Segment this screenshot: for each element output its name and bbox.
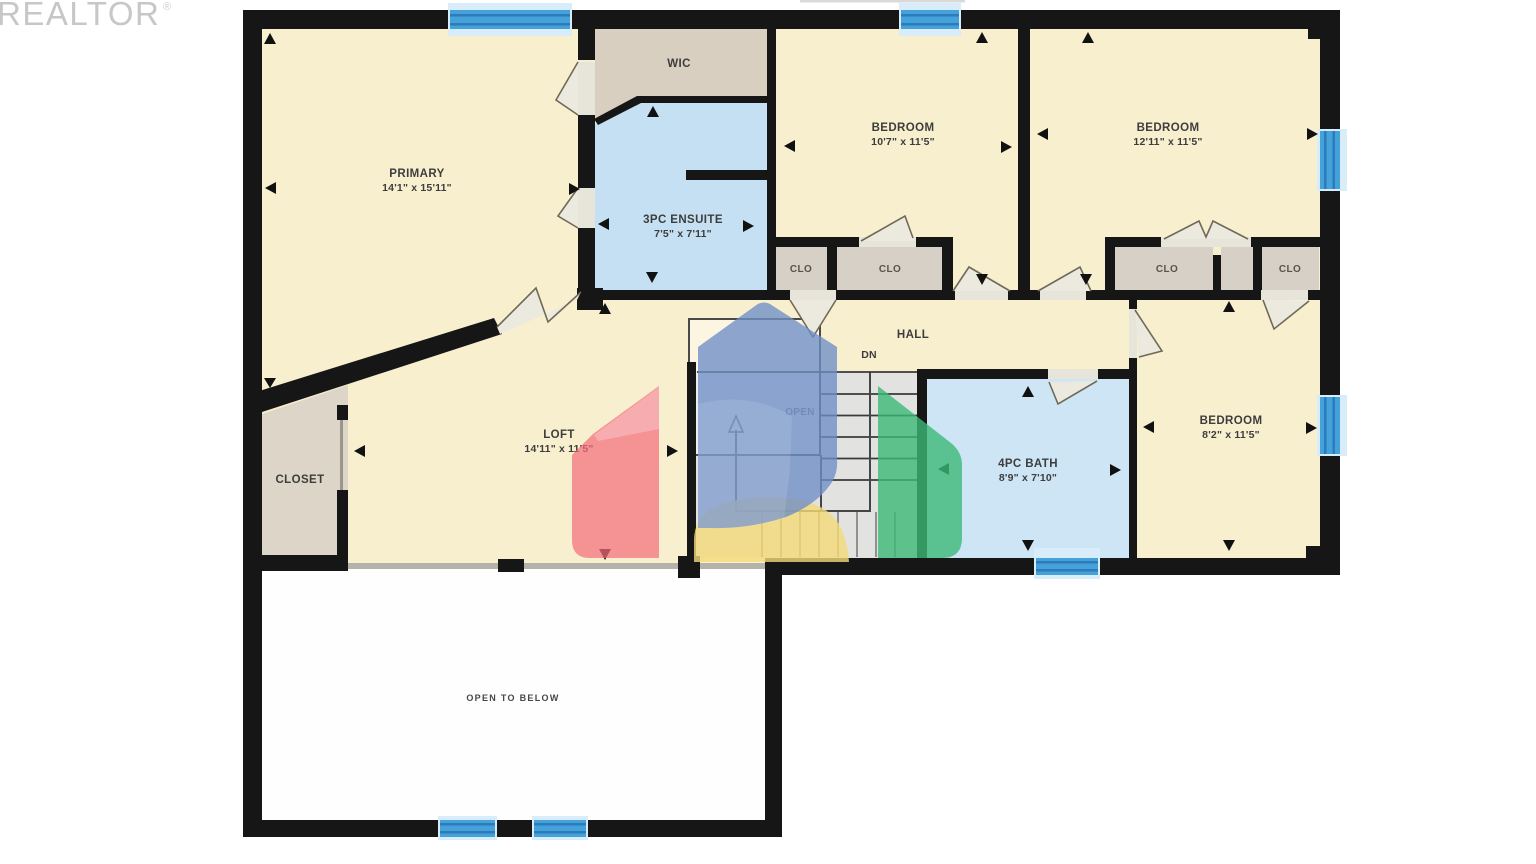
svg-text:10'7" x 11'5": 10'7" x 11'5" bbox=[871, 136, 935, 148]
svg-text:8'2" x 11'5": 8'2" x 11'5" bbox=[1202, 429, 1260, 441]
svg-text:4PC BATH: 4PC BATH bbox=[998, 458, 1058, 470]
svg-text:DN: DN bbox=[861, 349, 877, 361]
svg-text:LOFT: LOFT bbox=[543, 429, 575, 441]
svg-text:12'11" x 11'5": 12'11" x 11'5" bbox=[1133, 136, 1202, 148]
svg-text:8'9" x 7'10": 8'9" x 7'10" bbox=[999, 472, 1057, 484]
svg-text:BEDROOM: BEDROOM bbox=[1200, 415, 1263, 427]
svg-text:BEDROOM: BEDROOM bbox=[872, 122, 935, 134]
svg-text:PRIMARY: PRIMARY bbox=[389, 168, 444, 180]
svg-text:WIC: WIC bbox=[667, 58, 691, 70]
svg-text:CLO: CLO bbox=[1279, 264, 1301, 275]
svg-text:®: ® bbox=[163, 1, 171, 13]
svg-text:REALTOR: REALTOR bbox=[0, 0, 160, 32]
svg-text:CLO: CLO bbox=[879, 264, 901, 275]
svg-text:HALL: HALL bbox=[897, 329, 929, 341]
svg-text:CLO: CLO bbox=[790, 264, 812, 275]
svg-text:14'1" x 15'11": 14'1" x 15'11" bbox=[382, 182, 452, 194]
svg-text:CLO: CLO bbox=[1156, 264, 1178, 275]
svg-text:CLOSET: CLOSET bbox=[275, 474, 324, 486]
svg-text:7'5" x 7'11": 7'5" x 7'11" bbox=[654, 228, 712, 240]
svg-text:3PC ENSUITE: 3PC ENSUITE bbox=[643, 214, 723, 226]
svg-text:BEDROOM: BEDROOM bbox=[1137, 122, 1200, 134]
svg-text:OPEN TO BELOW: OPEN TO BELOW bbox=[466, 693, 559, 703]
